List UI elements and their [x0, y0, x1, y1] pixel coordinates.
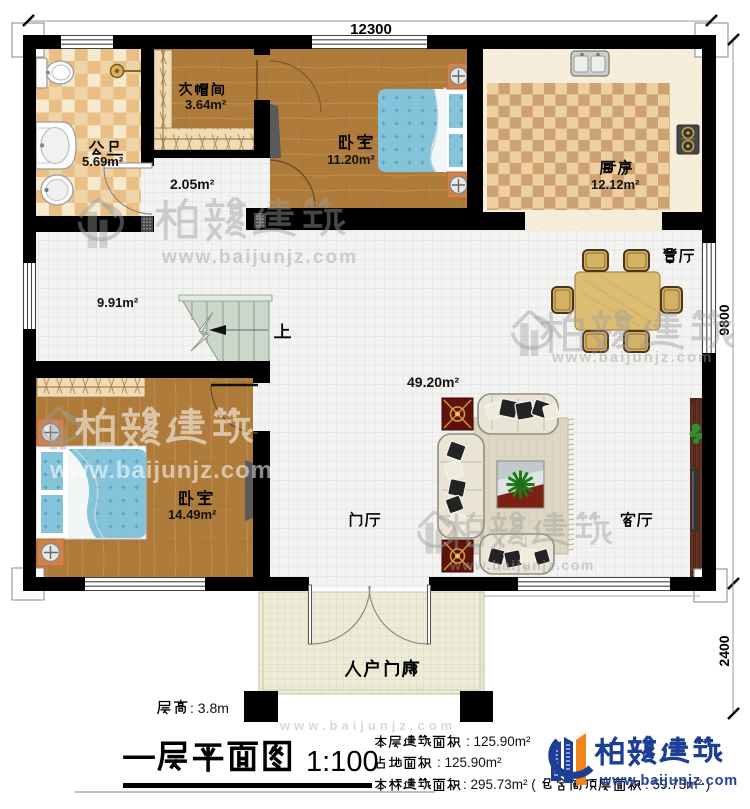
svg-text:www.baijunjz.com: www.baijunjz.com: [599, 773, 738, 789]
svg-text:www.baijunjz.com: www.baijunjz.com: [449, 557, 595, 573]
svg-text:2.05m²: 2.05m²: [170, 176, 215, 192]
svg-text:12.12m²: 12.12m²: [591, 177, 640, 192]
svg-text:14.49m²: 14.49m²: [168, 507, 217, 522]
svg-text:: 125.90m²: : 125.90m²: [466, 734, 531, 749]
svg-text:1:100: 1:100: [306, 746, 379, 778]
svg-text:49.20m²: 49.20m²: [407, 374, 459, 390]
svg-text:: 295.73m² (: : 295.73m² (: [463, 777, 536, 792]
svg-text:www.baijunjz.com: www.baijunjz.com: [161, 247, 358, 268]
svg-text:www.baijunjz.com: www.baijunjz.com: [279, 718, 456, 733]
svg-text:11.20m²: 11.20m²: [327, 152, 375, 167]
svg-text:2400: 2400: [716, 635, 732, 666]
svg-text:5.69m²: 5.69m²: [82, 154, 124, 169]
svg-text:: 3.8m: : 3.8m: [190, 700, 229, 716]
svg-text:9.91m²: 9.91m²: [97, 295, 139, 310]
svg-text:www.baijunjz.com: www.baijunjz.com: [551, 349, 713, 366]
svg-text:3.64m²: 3.64m²: [185, 97, 227, 112]
svg-text:: 125.90m²: : 125.90m²: [437, 755, 502, 770]
svg-text:12300: 12300: [350, 21, 392, 38]
svg-text:www.baijunjz.com: www.baijunjz.com: [49, 457, 273, 484]
